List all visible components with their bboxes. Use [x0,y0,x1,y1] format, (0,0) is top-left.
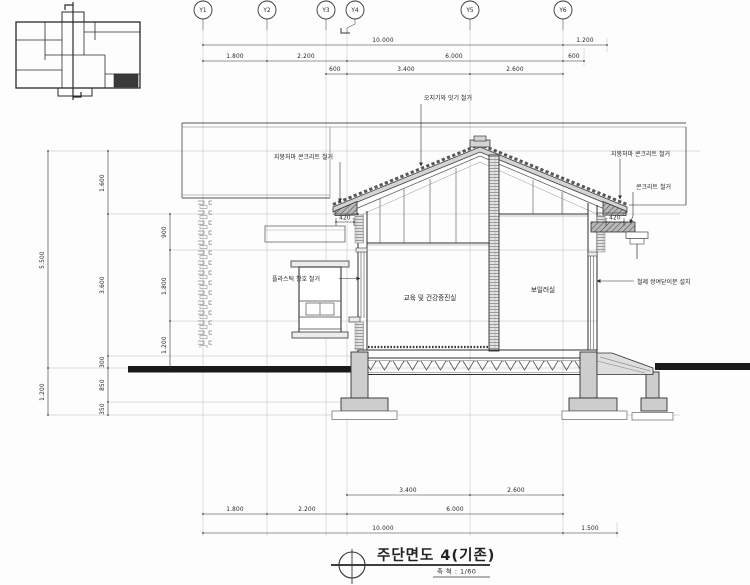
annotation-door-install: 철제 쌍여닫이문 설치 [637,278,691,286]
annotation-left-eave-removal: 지붕처마 콘크리트 철거 [274,153,333,161]
dim-bot-6000: 6.000 [446,507,464,513]
section-cut-mark [341,28,350,33]
dim-left-5500: 5.500 [40,251,46,269]
grid-bubble-y4: Y4 [341,1,364,33]
dim-left-300: 300 [100,356,106,368]
ground-line-right [655,363,750,370]
grid-bubble-y2: Y2 [258,1,276,30]
dim-top-2600: 2.600 [506,67,524,73]
dim-left-350: 350 [100,403,106,415]
right-pilaster [597,216,605,252]
dim-left-1200i: 1.200 [162,336,168,354]
dim-top-2200: 2.200 [297,54,315,60]
dim-top-total: 10.000 [372,38,394,44]
grid-bubble-y1-label: Y1 [198,8,207,14]
window-elevation [291,261,349,338]
dimensions-bottom: 3.400 2.600 1.800 2.200 6.000 10.000 1.5… [203,488,617,533]
dim-bot-total: 10.000 [372,526,394,532]
floor-structure [352,358,597,375]
window-cornice [291,261,349,267]
right-concrete-slab [591,222,635,232]
key-plan-hatched-area [114,74,138,87]
dim-left-900: 900 [162,226,168,238]
roof [333,136,627,219]
dim-top-6000: 6.000 [445,54,463,60]
grid-bubble-y1: Y1 [194,1,212,30]
key-plan [16,2,140,100]
drawing-canvas: 420 420 Y1 Y2 Y3 Y4 [0,0,750,585]
room-label-right: 보일러실 [531,285,555,294]
floor-joists [352,361,597,372]
key-plan-section-cut-line [65,2,81,100]
right-slab-bracket [626,232,648,259]
dim-top-600l: 600 [329,67,341,73]
section-drawing-sheet: 420 420 Y1 Y2 Y3 Y4 [0,0,750,585]
dim-bot-1500: 1.500 [581,526,599,532]
ground-line-left [128,366,354,373]
dimensions-top: 10.000 1.200 1.800 2.200 6.000 600 600 3… [203,38,607,74]
eave-dim-left-label: 420 [339,216,351,222]
annotation-concrete-removal: 콘크리트 철거 [636,183,671,191]
dim-top-1800: 1.800 [226,54,244,60]
dim-bot-1800: 1.800 [226,507,244,513]
dim-top-600r: 600 [568,54,580,60]
eave-dim-left: 420 [336,216,354,227]
dim-left-1600: 1.600 [100,174,106,192]
central-brick-wall [489,155,499,351]
eave-dim-right-label: 420 [609,216,621,222]
annotation-right-eave-removal: 지붕처마 콘크리트 철거 [611,150,670,158]
footing-far-right [641,398,667,411]
dim-left-850: 850 [100,379,106,391]
annotation-roof-tile-removal: 오지기와 잇기 철거 [424,94,472,102]
grid-bubble-y5: Y5 [461,1,479,30]
dim-top-right: 1.200 [576,38,594,44]
window-sill-section [349,317,360,322]
grid-bubble-y3-label: Y3 [321,8,330,14]
brick-pier-elevation [198,200,212,348]
dim-top-3400: 3.400 [397,67,415,73]
grid-bubble-y6: Y6 [554,1,572,30]
dimensions-left: 5.500 1.200 1.600 3.600 300 850 350 900 … [40,151,170,415]
dim-bot-2200: 2.200 [298,507,316,513]
window-sill [292,332,348,338]
drawing-scale: 축 척 : 1/60 [437,567,476,576]
building-section: 420 420 [332,136,673,420]
dim-left-1800: 1.800 [162,277,168,295]
footing-stem-left [351,352,368,398]
room-label-left: 교육 및 건강증진실 [404,293,457,302]
roof-tiles [333,145,627,205]
annotation-window-removal: 플라스틱 창호 철거 [272,275,320,283]
footing-left [341,398,388,411]
grid-bubble-y4-label: Y4 [350,8,359,14]
dim-bot-2600: 2.600 [507,488,525,494]
footing-right [569,398,617,411]
footing-stem-right [580,352,597,398]
grid-bubble-y3: Y3 [317,1,335,30]
dim-bot-3400: 3.400 [399,488,417,494]
dim-left-1200b: 1.200 [40,383,46,401]
grid-bubble-y6-label: Y6 [558,8,567,14]
grid-bubbles: Y1 Y2 Y3 Y4 Y5 Y6 [194,1,572,33]
entry-ramp [597,353,653,375]
drawing-title: 주단면도 4(기존) [377,547,495,564]
grid-bubble-y5-label: Y5 [465,8,474,14]
title-block: 주단면도 4(기존) 축 척 : 1/60 [331,547,495,584]
footing-stem-far-right [646,372,659,398]
dim-left-3600: 3.600 [100,276,106,294]
grid-bubble-y2-label: Y2 [262,8,271,14]
window-awning [265,226,345,242]
